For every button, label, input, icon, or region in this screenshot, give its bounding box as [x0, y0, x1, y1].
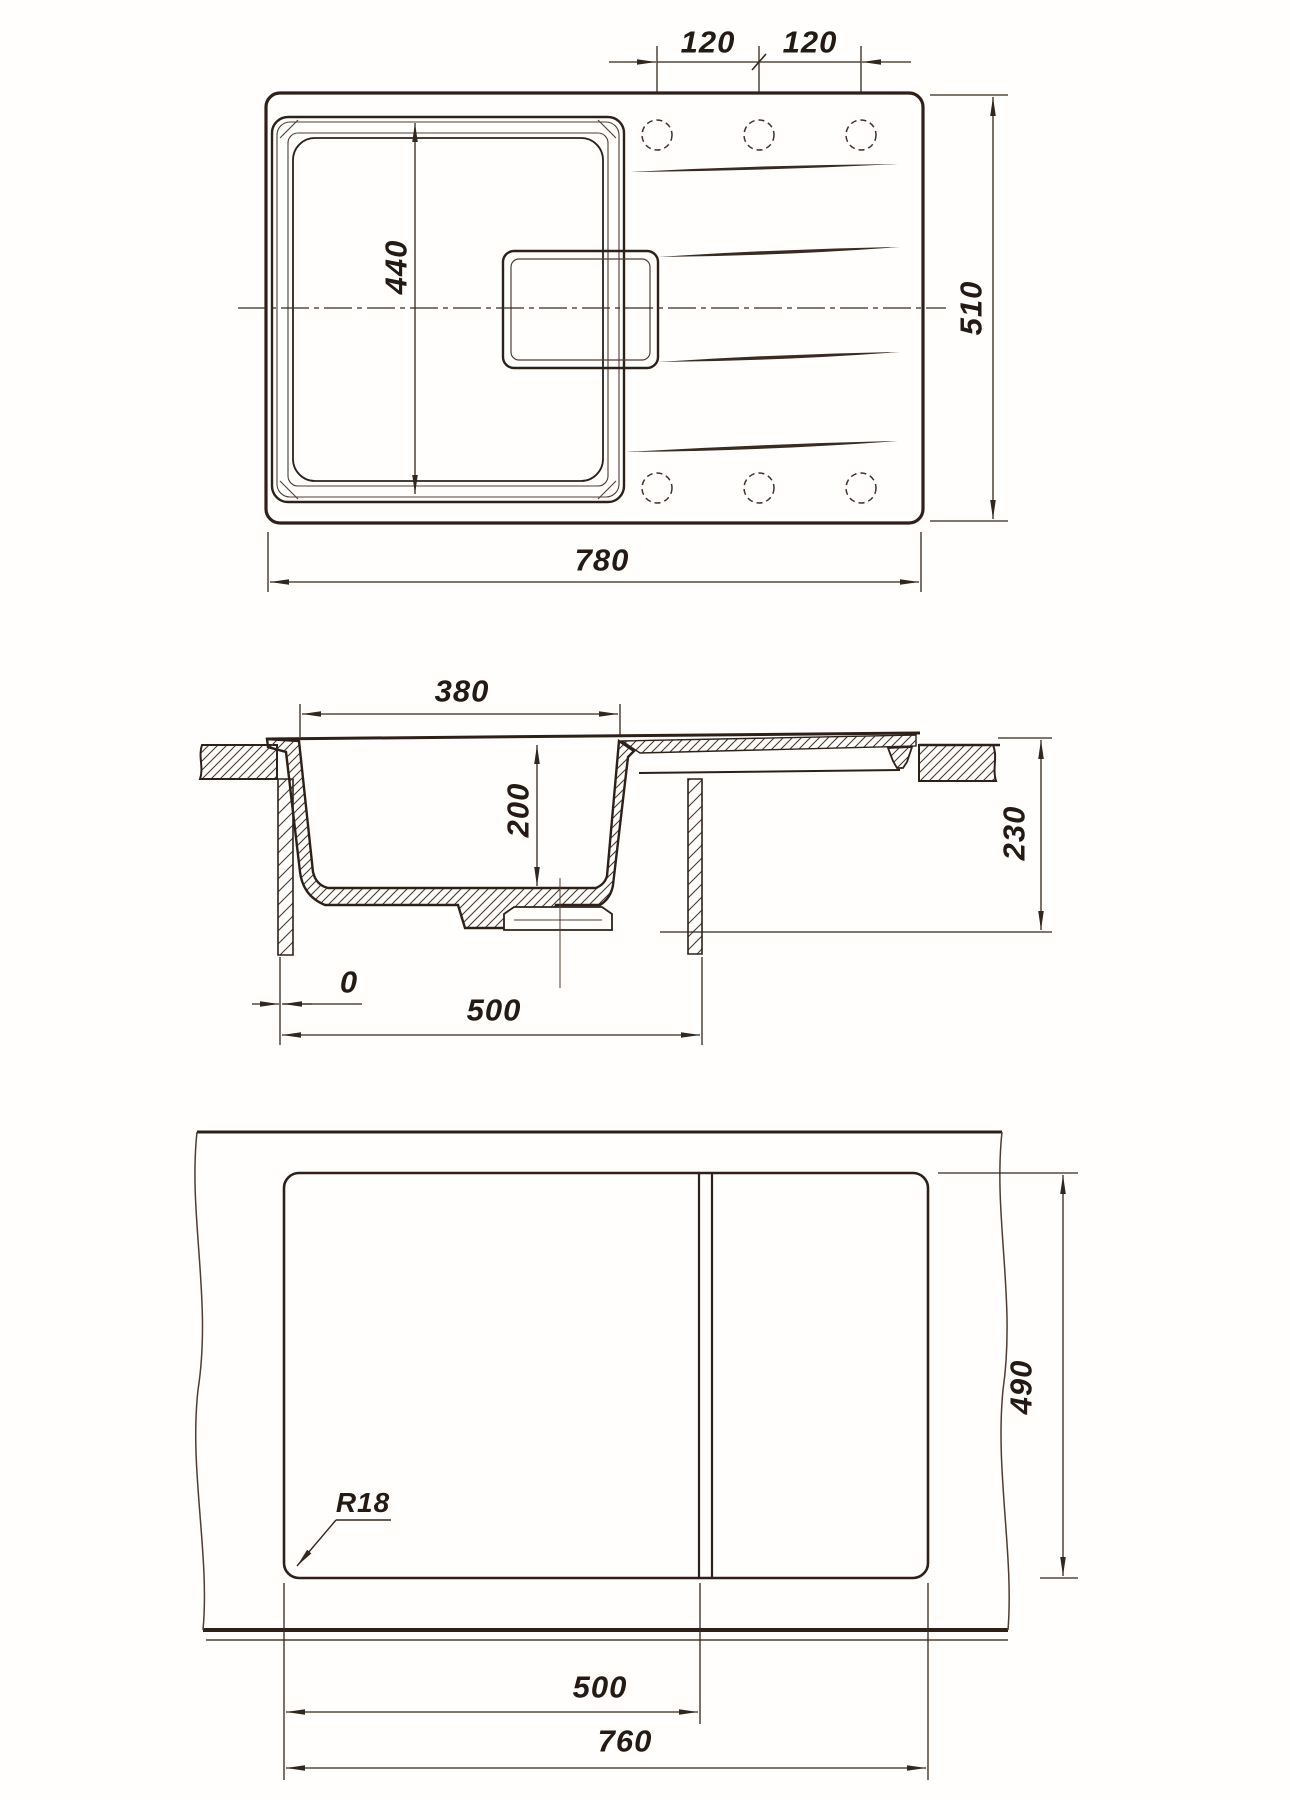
dim-cutout-left-section: 500	[573, 1672, 628, 1703]
dim-zero-offset: 0	[340, 967, 358, 998]
dim-bowl-length: 440	[381, 240, 412, 295]
bowl-rim-inner	[277, 122, 619, 497]
top-view	[238, 46, 1008, 592]
dim-bowl-width: 380	[435, 676, 490, 707]
drawing-linework	[0, 0, 1290, 1800]
dim-cutout-depth: 490	[1006, 1360, 1037, 1415]
radius-leader	[297, 1520, 336, 1566]
bowl-bottom-edge	[293, 138, 603, 481]
bowl-rim-outer	[272, 117, 624, 502]
dim-overall-height: 230	[999, 806, 1030, 861]
bowl-section	[267, 739, 634, 928]
dim-hole-pitch-left: 120	[681, 27, 736, 58]
right-cabinet-wall	[688, 779, 702, 954]
cutout-dimensions	[284, 1173, 1078, 1780]
bowl-corner-chamfers	[280, 120, 616, 499]
dim-overall-width: 510	[956, 281, 987, 336]
left-cabinet-wall	[278, 779, 293, 955]
dim-hole-pitch-right: 120	[783, 27, 838, 58]
top-view-dimensions	[268, 46, 1008, 592]
break-line-left	[195, 1132, 205, 1630]
section-view	[200, 704, 1052, 1045]
dim-cutout-length: 760	[598, 1726, 653, 1757]
drain-box-inner	[511, 259, 650, 360]
dim-corner-radius: R18	[336, 1489, 390, 1517]
bowl-wall-top	[288, 133, 608, 486]
drainboard-section	[622, 735, 916, 753]
overflow-detail	[888, 747, 912, 768]
technical-drawing-sheet: 120 120 510 440 780 380 200 230 0 500 49…	[0, 0, 1290, 1800]
right-countertop	[919, 745, 996, 781]
drain-box-outer	[503, 251, 658, 368]
cutout-view	[195, 1132, 1078, 1780]
dim-overall-length: 780	[575, 545, 630, 576]
drain-recess	[504, 907, 612, 930]
dim-bowl-depth: 200	[503, 783, 534, 838]
skirt-line	[639, 770, 900, 773]
dim-cabinet-width: 500	[467, 995, 522, 1026]
